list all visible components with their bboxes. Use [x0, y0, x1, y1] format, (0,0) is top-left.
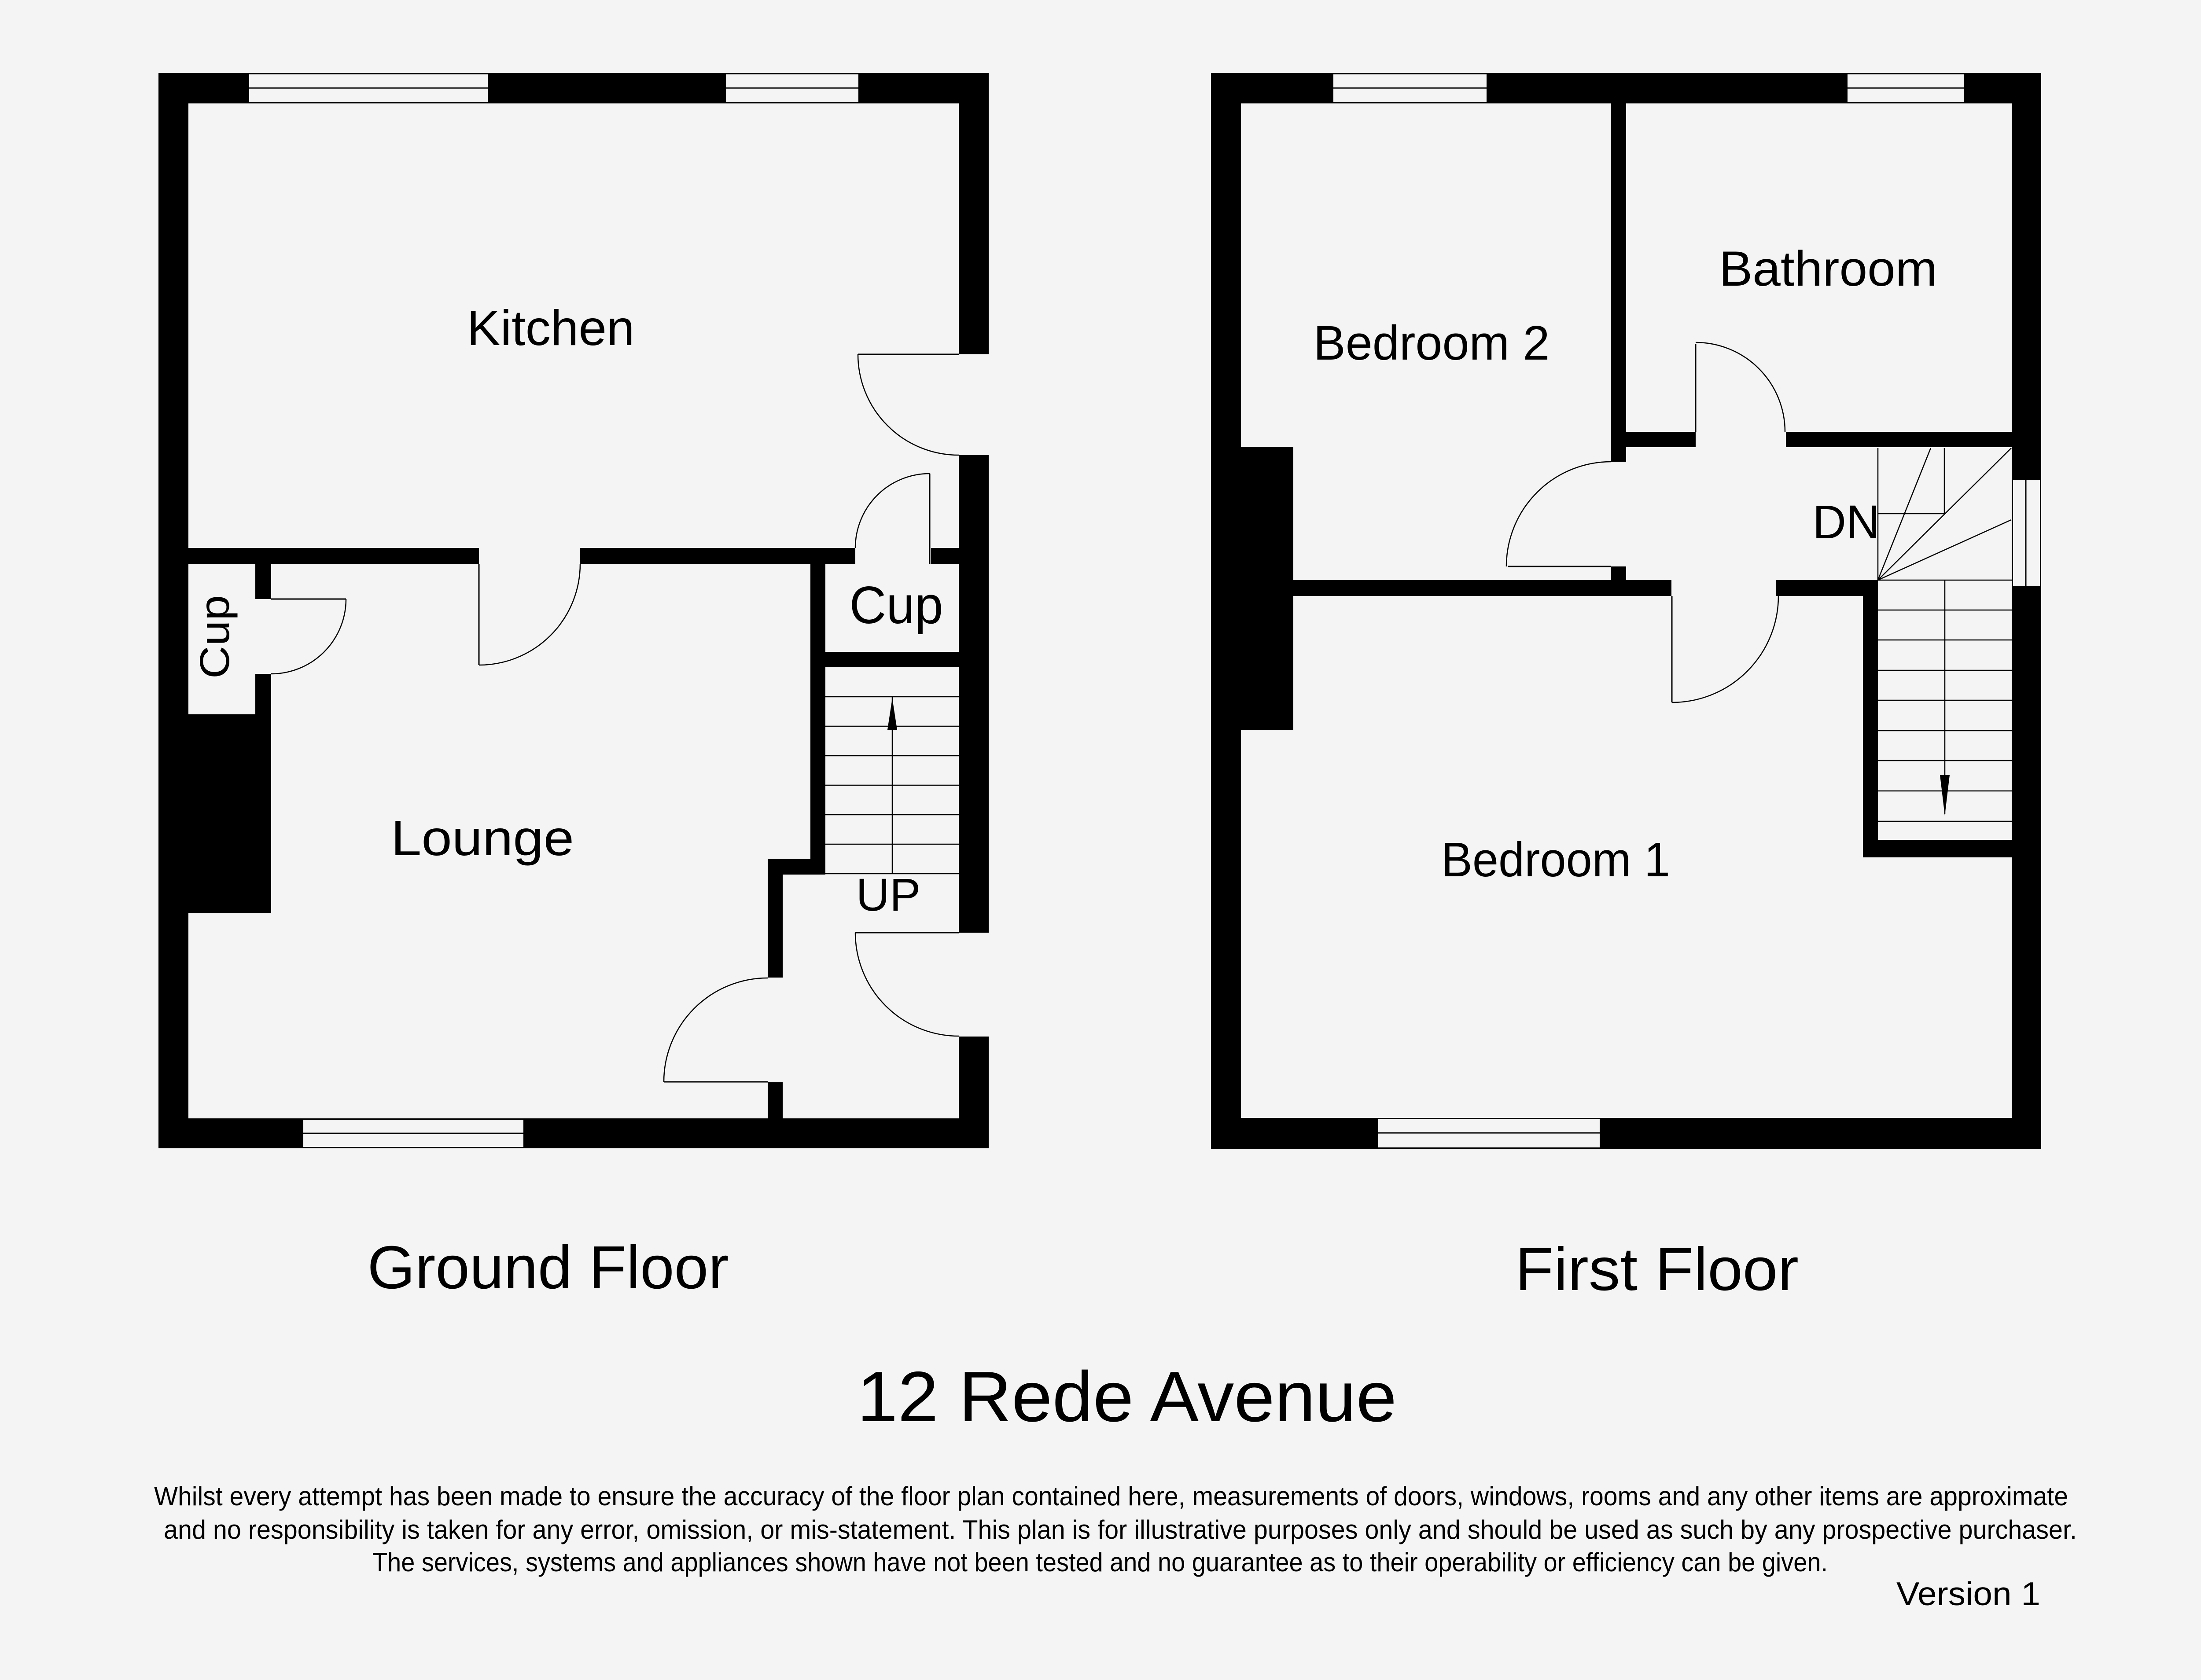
svg-text:Cup: Cup [191, 595, 238, 679]
svg-text:DN: DN [1813, 495, 1880, 548]
svg-text:Whilst every attempt has been: Whilst every attempt has been made to en… [154, 1481, 2068, 1511]
svg-text:Cup: Cup [850, 576, 943, 635]
svg-text:Bathroom: Bathroom [1719, 241, 1937, 296]
svg-text:The services, systems and appl: The services, systems and appliances sho… [372, 1548, 1828, 1577]
svg-text:Version 1: Version 1 [1896, 1575, 2040, 1612]
svg-text:UP: UP [856, 869, 921, 921]
svg-text:Bedroom 1: Bedroom 1 [1441, 833, 1670, 887]
svg-text:Bedroom 2: Bedroom 2 [1314, 316, 1550, 370]
svg-text:First Floor: First Floor [1515, 1235, 1799, 1303]
svg-text:Lounge: Lounge [391, 810, 574, 866]
svg-text:Kitchen: Kitchen [467, 300, 635, 356]
svg-text:12 Rede Avenue: 12 Rede Avenue [857, 1357, 1397, 1437]
svg-text:Ground Floor: Ground Floor [368, 1234, 729, 1301]
svg-text:and no responsibility is taken: and no responsibility is taken for any e… [164, 1515, 2077, 1544]
